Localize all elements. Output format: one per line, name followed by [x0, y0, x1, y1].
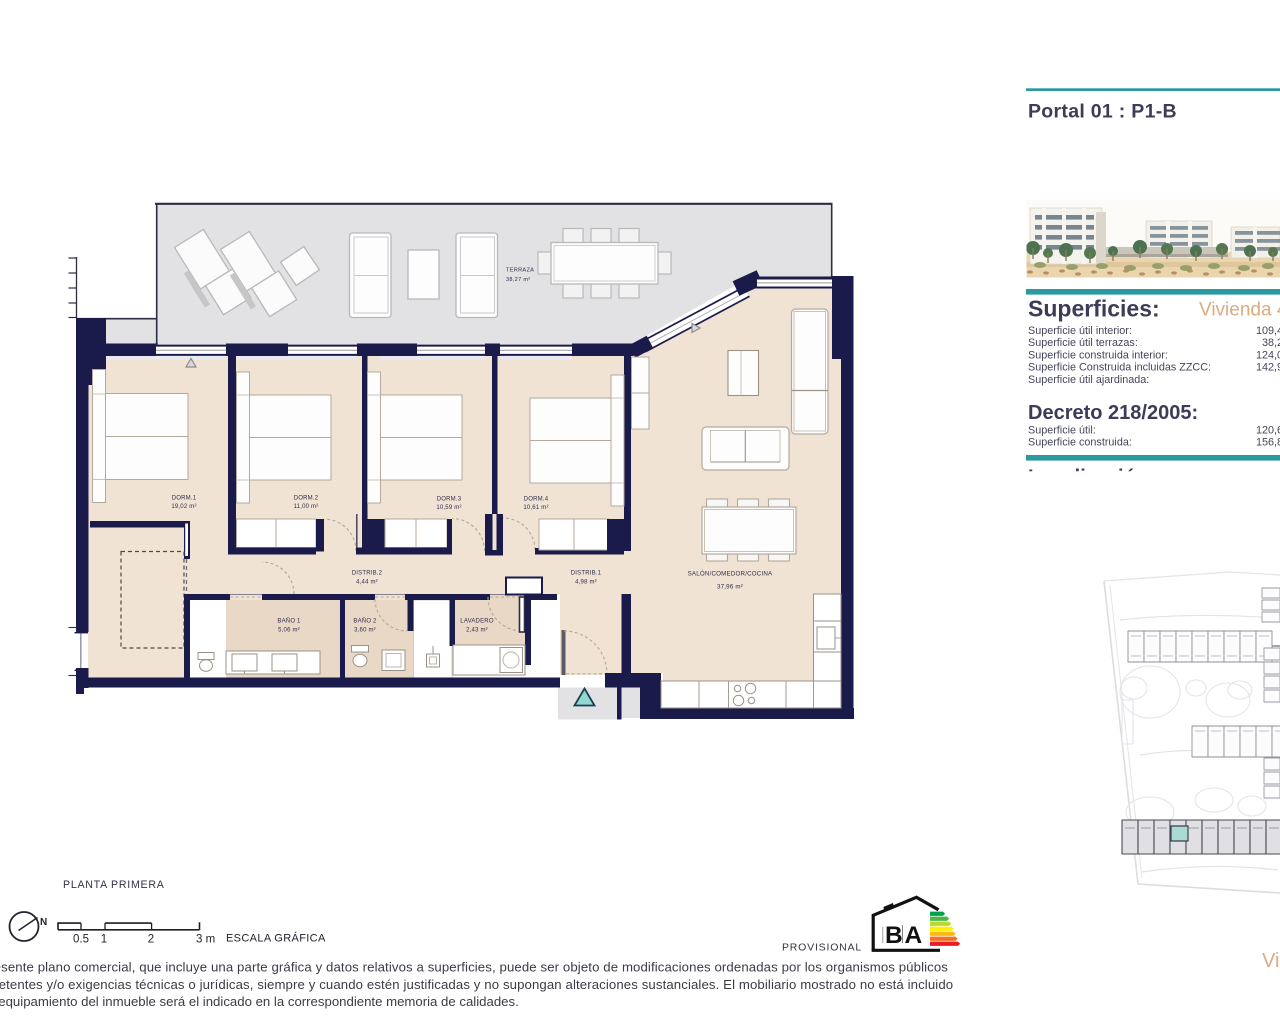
- svg-text:Vivienda 4: Vivienda 4: [1199, 300, 1280, 321]
- svg-text:37,96 m²: 37,96 m²: [717, 584, 743, 591]
- svg-text:Superficies:: Superficies:: [1028, 296, 1160, 322]
- svg-text:1: 1: [101, 934, 107, 946]
- svg-text:DORM.2: DORM.2: [294, 496, 319, 502]
- svg-text:Portal 01 : P1-B: Portal 01 : P1-B: [1028, 101, 1177, 123]
- svg-text:0.5: 0.5: [73, 934, 89, 946]
- svg-text:DORM.1: DORM.1: [172, 496, 197, 502]
- svg-text:109,45: 109,45: [1256, 325, 1280, 337]
- svg-text:Decreto 218/2005:: Decreto 218/2005:: [1028, 402, 1198, 424]
- svg-text:Superficie construida:: Superficie construida:: [1028, 437, 1132, 449]
- svg-text:38,27: 38,27: [1262, 337, 1280, 349]
- svg-text:142,98: 142,98: [1256, 362, 1280, 374]
- svg-text:B: B: [885, 922, 903, 949]
- svg-text:El presente plano comercial, q: El presente plano comercial, que incluye…: [0, 960, 948, 975]
- svg-text:DISTRIB.1: DISTRIB.1: [571, 571, 602, 577]
- svg-text:Localización: Localización: [1028, 467, 1148, 489]
- svg-text:DISTRIB.2: DISTRIB.2: [352, 571, 383, 577]
- svg-text:Superficie útil ajardinada:: Superficie útil ajardinada:: [1028, 374, 1149, 386]
- svg-text:A: A: [905, 922, 923, 949]
- svg-text:Superficie útil interior:: Superficie útil interior:: [1028, 325, 1132, 337]
- svg-text:2: 2: [148, 934, 154, 946]
- svg-text:Superficie útil:: Superficie útil:: [1028, 425, 1096, 437]
- svg-text:ESCALA GRÁFICA: ESCALA GRÁFICA: [226, 932, 326, 945]
- svg-text:4,98 m²: 4,98 m²: [575, 580, 597, 586]
- svg-text:38,27 m²: 38,27 m²: [506, 277, 530, 283]
- svg-text:3,60 m²: 3,60 m²: [354, 628, 376, 634]
- svg-text:3 m: 3 m: [196, 934, 215, 946]
- svg-text:10,61 m²: 10,61 m²: [523, 505, 548, 511]
- svg-text:SALÓN/COMEDOR/COCINA: SALÓN/COMEDOR/COCINA: [688, 571, 773, 578]
- svg-text:5,06 m²: 5,06 m²: [278, 628, 300, 634]
- svg-text:11,00 m²: 11,00 m²: [294, 504, 319, 510]
- svg-text:19,02 m²: 19,02 m²: [171, 504, 196, 510]
- svg-text:DORM.4: DORM.4: [524, 497, 549, 503]
- svg-text:LAVADERO: LAVADERO: [460, 619, 494, 625]
- svg-text:4,44 m²: 4,44 m²: [356, 580, 378, 586]
- svg-text:BAÑO 1: BAÑO 1: [277, 618, 301, 625]
- svg-text:Superficie construida interior: Superficie construida interior:: [1028, 349, 1168, 361]
- svg-text:DORM.3: DORM.3: [437, 497, 462, 503]
- svg-text:en el equipamiento del inmuebl: en el equipamiento del inmueble será el …: [0, 994, 519, 1009]
- svg-text:124,06: 124,06: [1256, 349, 1280, 361]
- svg-text:BAÑO 2: BAÑO 2: [353, 618, 377, 625]
- svg-text:PLANTA PRIMERA: PLANTA PRIMERA: [63, 879, 165, 891]
- svg-text:120,61: 120,61: [1256, 425, 1280, 437]
- svg-text:Superficie Construida incluida: Superficie Construida incluidas ZZCC:: [1028, 362, 1211, 374]
- svg-text:TERRAZA: TERRAZA: [506, 268, 534, 274]
- svg-text:PROVISIONAL: PROVISIONAL: [782, 942, 862, 954]
- svg-text:Vivienda 4: Vivienda 4: [1262, 950, 1280, 972]
- svg-text:2,43 m²: 2,43 m²: [466, 628, 488, 634]
- svg-text:156,82: 156,82: [1256, 437, 1280, 449]
- svg-text:10,59 m²: 10,59 m²: [436, 505, 461, 511]
- svg-text:N: N: [40, 917, 47, 928]
- svg-text:competentes y/o exigencias téc: competentes y/o exigencias técnicas o ju…: [0, 977, 953, 992]
- svg-text:Superficie útil terrazas:: Superficie útil terrazas:: [1028, 337, 1138, 349]
